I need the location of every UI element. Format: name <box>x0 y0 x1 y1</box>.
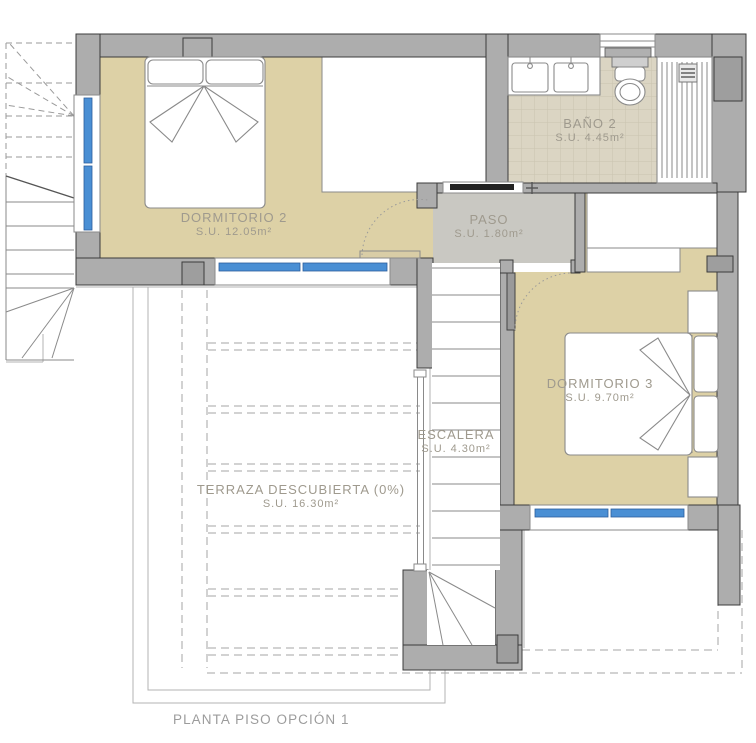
closet-dormitorio-3 <box>587 192 717 248</box>
window-dormitorio-2-left <box>84 98 92 163</box>
wall-pillar <box>714 57 742 101</box>
window-dormitorio-2-bottom <box>219 263 300 271</box>
window-frame <box>215 258 390 285</box>
floor-paso <box>433 192 577 263</box>
bed-dormitorio-2 <box>145 57 265 208</box>
door-leaf-dormitorio-2 <box>360 251 420 258</box>
window-dormitorio-3 <box>611 509 684 517</box>
pillow <box>694 336 718 392</box>
exterior-stair <box>6 43 74 360</box>
terrace-dashed-bands <box>208 343 420 655</box>
window-dormitorio-3 <box>535 509 608 517</box>
nightstand <box>688 457 718 497</box>
wall-pillar <box>707 256 733 272</box>
window-dormitorio-2-bottom <box>303 263 387 271</box>
plan-caption: PLANTA PISO OPCIÓN 1 <box>173 712 350 727</box>
nightstand <box>688 291 718 333</box>
stair-cut-line <box>6 176 74 198</box>
wall-pillar <box>497 635 518 663</box>
toilet-icon <box>612 57 648 105</box>
closet-dormitorio-3 <box>587 248 680 272</box>
window-dormitorio-2-left <box>84 166 92 230</box>
shower-icon <box>657 57 712 183</box>
pillow <box>694 396 718 452</box>
door-leaf-bathroom <box>450 184 514 190</box>
floor-plan: DORMITORIO 2 S.U. 12.05m² BAÑO 2 S.U. 4.… <box>0 0 756 743</box>
floor-plan-drawing <box>0 0 756 743</box>
closet-dormitorio-2 <box>322 57 486 192</box>
door-leaf-dormitorio-3 <box>507 273 515 330</box>
window-sill <box>605 48 651 57</box>
wall-pillar <box>182 262 204 285</box>
